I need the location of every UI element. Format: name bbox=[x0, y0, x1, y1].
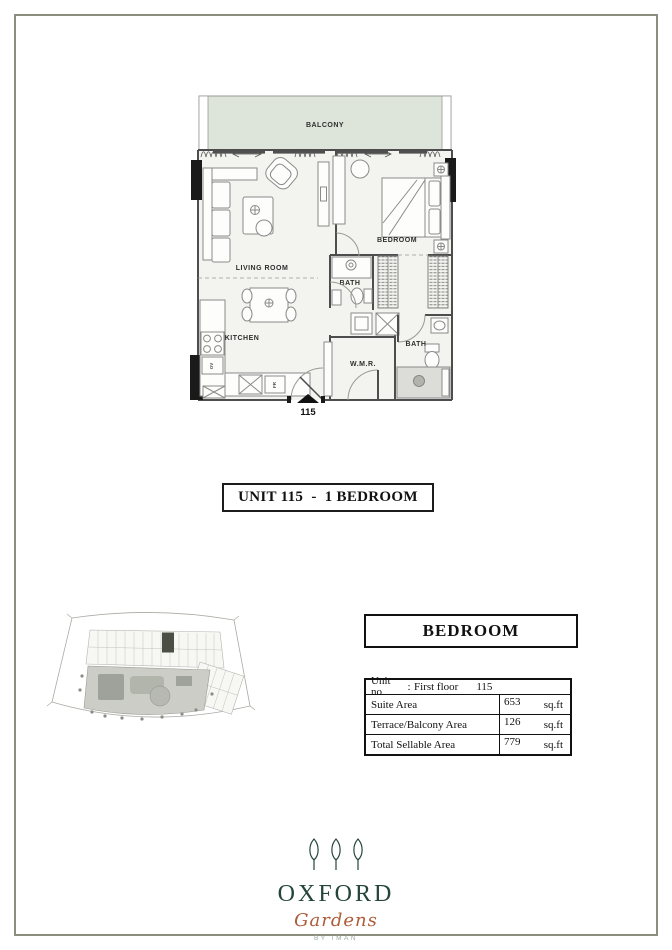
entry-unit-number: 115 bbox=[300, 407, 316, 418]
logo-byline: BY IMAN bbox=[256, 935, 416, 942]
area-table: Unit no : First floor 115 Suite Area 653… bbox=[364, 678, 572, 756]
brand-logo: OXFORD Gardens BY IMAN bbox=[256, 834, 416, 942]
wmr-label: W.M.R. bbox=[350, 361, 376, 368]
balcony-label: BALCONY bbox=[306, 122, 344, 129]
unit-title: UNIT 115 - 1 BEDROOM bbox=[238, 489, 418, 506]
row-unit: sq.ft bbox=[544, 700, 563, 714]
details-header: BEDROOM bbox=[423, 621, 520, 641]
logo-wordmark: OXFORD bbox=[256, 881, 416, 908]
row-value: 779 bbox=[504, 737, 521, 748]
bath2-label: BATH bbox=[406, 341, 427, 348]
unit-number: 115 bbox=[476, 682, 492, 693]
bedroom-label: BEDROOM bbox=[377, 237, 417, 244]
row-label: Suite Area bbox=[366, 695, 499, 714]
unit-title-box: UNIT 115 - 1 BEDROOM bbox=[222, 483, 434, 512]
living-room-label: LIVING ROOM bbox=[236, 265, 289, 272]
table-row: Terrace/Balcony Area 126 sq.ft bbox=[366, 714, 570, 734]
row-unit: sq.ft bbox=[544, 740, 563, 754]
kitchen-label: KITCHEN bbox=[225, 335, 260, 342]
oven-label: OV bbox=[209, 363, 214, 370]
fridge-label: FR bbox=[272, 381, 277, 388]
row-label: Terrace/Balcony Area bbox=[366, 715, 499, 734]
row-unit: sq.ft bbox=[544, 720, 563, 734]
unit-no-colon: : bbox=[404, 682, 414, 693]
brochure-page: BALCONY bbox=[0, 0, 672, 950]
row-label: Total Sellable Area bbox=[366, 735, 499, 754]
bath1-label: BATH bbox=[340, 280, 361, 287]
row-value: 653 bbox=[504, 697, 521, 708]
table-row-unit: Unit no : First floor 115 bbox=[366, 680, 570, 695]
balcony: BALCONY bbox=[199, 96, 451, 154]
floor-plan: BALCONY bbox=[185, 92, 465, 437]
key-plan bbox=[42, 604, 262, 732]
trees-icon bbox=[294, 834, 378, 874]
logo-script: Gardens bbox=[256, 910, 416, 931]
table-row: Total Sellable Area 779 sq.ft bbox=[366, 734, 570, 754]
unit-floor: First floor bbox=[414, 682, 458, 693]
details-header-box: BEDROOM bbox=[364, 614, 578, 648]
highlighted-unit bbox=[162, 633, 174, 653]
table-row: Suite Area 653 sq.ft bbox=[366, 695, 570, 714]
row-value: 126 bbox=[504, 717, 521, 728]
